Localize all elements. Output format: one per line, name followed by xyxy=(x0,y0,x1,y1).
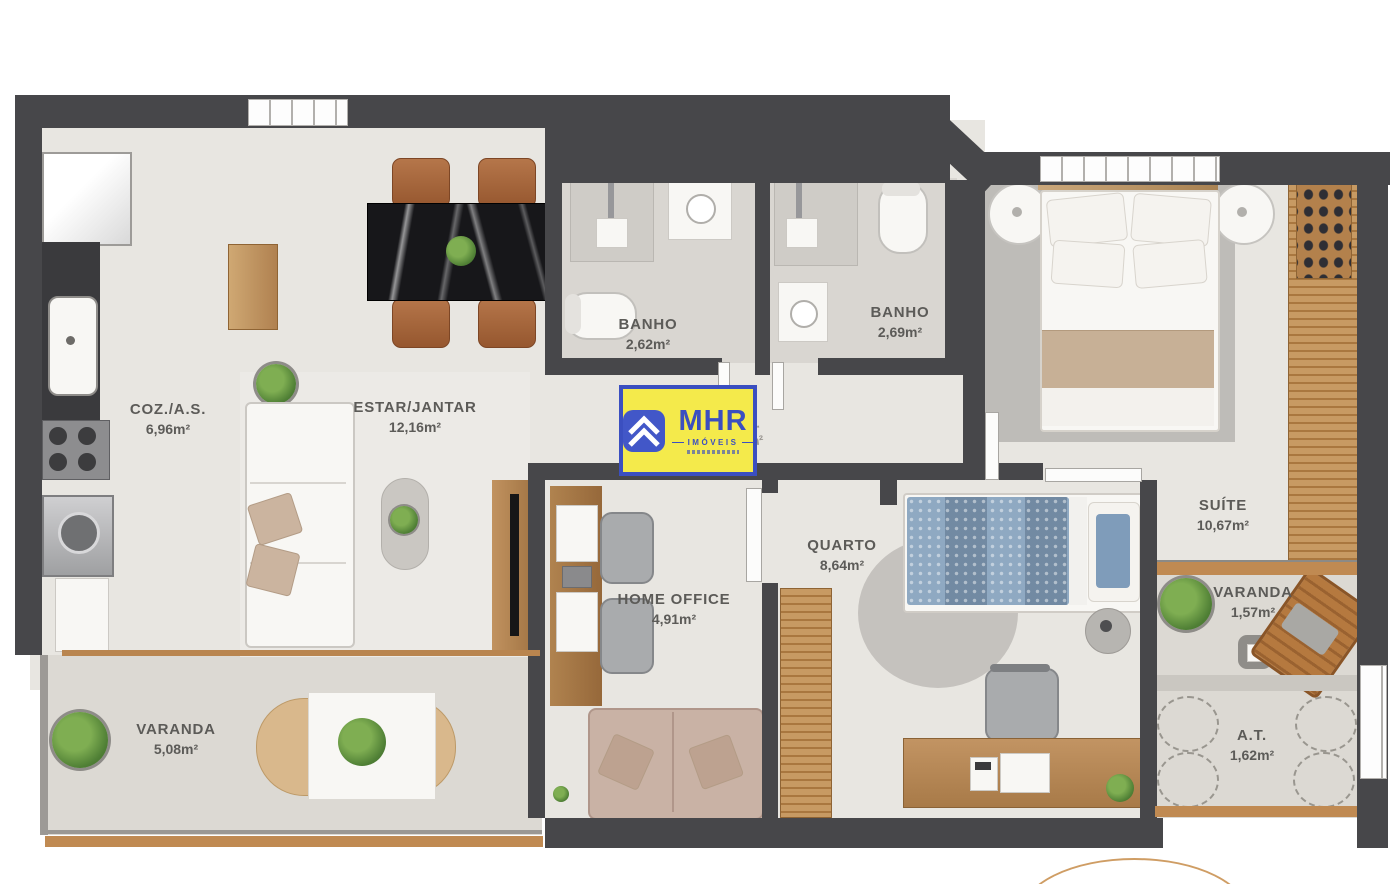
mhr-imoveis-logo: MHR IMÓVEIS xyxy=(619,385,757,476)
wall-office-left xyxy=(528,463,545,818)
room-label-estar: ESTAR/JANTAR 12,16m² xyxy=(353,398,476,436)
shower-pipe xyxy=(796,183,802,219)
quarto-duvet xyxy=(907,497,1069,605)
logo-text-block: MHR IMÓVEIS xyxy=(672,407,755,454)
logo-brand: MHR xyxy=(678,407,747,436)
window-dining xyxy=(248,99,348,126)
wall-suite-left xyxy=(963,180,985,480)
wall-varanda-left-rail xyxy=(40,655,48,835)
wall-bath-divider xyxy=(755,180,770,375)
wall-under-bath-a xyxy=(562,358,722,375)
bed-blanket xyxy=(1042,330,1214,390)
room-label-suite: SUÍTE 10,67m² xyxy=(1197,496,1249,534)
quarto-desk-chair xyxy=(985,668,1059,742)
sofa-cushion-line xyxy=(250,482,346,484)
varanda2-plant xyxy=(1160,578,1212,630)
varanda-table-plant xyxy=(338,718,386,766)
sliding-door-track xyxy=(62,650,540,656)
wall-under-bath-b xyxy=(818,358,945,375)
door-banho2 xyxy=(772,362,784,410)
logo-dash xyxy=(742,442,754,444)
room-name: BANHO xyxy=(871,303,930,323)
room-name: ESTAR/JANTAR xyxy=(353,398,476,418)
varanda-bottom-rail xyxy=(45,836,543,847)
logo-fineprint xyxy=(687,450,739,454)
decorative-arc xyxy=(1020,858,1249,884)
quarto-desk-chair-back xyxy=(990,664,1050,672)
at-duct xyxy=(1157,752,1219,808)
room-label-banho1: BANHO 2,62m² xyxy=(619,315,678,353)
room-area: 1,62m² xyxy=(1230,746,1274,764)
nightstand-knob xyxy=(1237,207,1247,217)
toilet-tank xyxy=(882,182,920,196)
room-area: 2,69m² xyxy=(871,323,930,341)
room-name: VARANDA xyxy=(1213,583,1293,603)
office-monitor-desk xyxy=(556,592,598,652)
logo-subtitle: IMÓVEIS xyxy=(688,438,739,447)
quarto-pillow-inner xyxy=(1096,514,1130,588)
room-name: A.T. xyxy=(1230,726,1274,746)
room-area: 8,64m² xyxy=(807,556,877,574)
dining-chair xyxy=(392,158,450,208)
room-area: 2,62m² xyxy=(619,335,678,353)
kitchen-cabinet xyxy=(228,244,278,330)
quarto-wardrobe xyxy=(780,588,832,818)
office-printer xyxy=(562,566,592,588)
office-monitor-desk xyxy=(556,505,598,562)
door-office xyxy=(746,488,762,582)
wall-quarto-top xyxy=(778,463,1043,480)
varanda-bottom-line xyxy=(42,830,542,834)
room-area: 1,57m² xyxy=(1213,603,1293,621)
room-label-varanda2: VARANDA 1,57m² xyxy=(1213,583,1293,621)
wall-bottom xyxy=(545,818,1163,848)
fridge xyxy=(42,152,132,246)
room-area: 12,16m² xyxy=(353,418,476,436)
wall-left xyxy=(15,95,42,655)
room-area: 10,67m² xyxy=(1197,516,1249,534)
varanda-plant xyxy=(52,712,108,768)
at-duct xyxy=(1157,696,1219,752)
room-label-banho2: BANHO 2,69m² xyxy=(871,303,930,341)
wall-top-bath-block xyxy=(560,95,950,183)
shower-head xyxy=(596,218,628,248)
wall-office-right-a xyxy=(762,463,778,493)
window-at xyxy=(1360,665,1387,779)
floor-plan-canvas: COZ./A.S. 6,96m² ESTAR/JANTAR 12,16m² BA… xyxy=(0,0,1400,884)
wall-quarto-top-stub xyxy=(880,480,897,505)
room-area: 6,96m² xyxy=(130,420,206,438)
bed-pillow xyxy=(1132,239,1208,289)
toilet-tank xyxy=(565,294,581,334)
dining-chair xyxy=(392,298,450,348)
office-plant xyxy=(553,786,569,802)
bed-sheet-fold xyxy=(1042,388,1214,426)
laundry-cabinet xyxy=(55,578,109,652)
wall-living-bath xyxy=(545,128,562,375)
side-table-knob xyxy=(1100,620,1112,632)
stove-burner xyxy=(49,453,67,471)
vanity-sink xyxy=(686,194,716,224)
office-sofa-seam xyxy=(672,712,674,812)
dining-chair xyxy=(478,298,536,348)
logo-subtitle-row: IMÓVEIS xyxy=(672,438,755,447)
mhr-house-icon xyxy=(622,409,666,453)
desk-plant xyxy=(1106,774,1134,802)
door-suite xyxy=(985,412,999,480)
dining-table-plant xyxy=(446,236,476,266)
laptop xyxy=(1000,753,1050,793)
notebook-screen xyxy=(975,762,991,770)
balcony-ledge xyxy=(1155,675,1357,691)
shower-pipe xyxy=(608,183,614,219)
sink-bowl xyxy=(790,300,818,328)
quarto-sheet xyxy=(1069,497,1087,605)
room-area: 5,08m² xyxy=(136,740,216,758)
room-label-coz: COZ./A.S. 6,96m² xyxy=(130,400,206,438)
room-name: VARANDA xyxy=(136,720,216,740)
coffee-table-plant xyxy=(390,506,418,534)
stove-burner xyxy=(49,427,67,445)
kitchen-sink xyxy=(48,296,98,396)
stove-burner xyxy=(78,427,96,445)
door-quarto xyxy=(1045,468,1142,482)
wall-quarto-right xyxy=(1140,480,1157,818)
office-chair xyxy=(600,512,654,584)
wall-bath2-right xyxy=(945,180,965,375)
room-area: 4,91m² xyxy=(618,610,731,628)
washing-machine-door xyxy=(58,512,100,554)
room-label-at: A.T. 1,62m² xyxy=(1230,726,1274,764)
kitchen-faucet xyxy=(66,336,75,345)
at-duct xyxy=(1295,696,1357,752)
room-label-quarto: QUARTO 8,64m² xyxy=(807,536,877,574)
room-label-varanda1: VARANDA 5,08m² xyxy=(136,720,216,758)
stove-burner xyxy=(78,453,96,471)
room-name: BANHO xyxy=(619,315,678,335)
bed-pillow xyxy=(1051,240,1126,289)
living-plant xyxy=(256,364,296,404)
wardrobe-shoe-shelf xyxy=(1296,181,1352,279)
at-duct xyxy=(1293,752,1355,808)
room-name: QUARTO xyxy=(807,536,877,556)
logo-dash xyxy=(672,442,684,444)
shower-head xyxy=(786,218,818,248)
room-name: COZ./A.S. xyxy=(130,400,206,420)
tv xyxy=(510,494,519,636)
dining-chair xyxy=(478,158,536,208)
at-bottom-rail xyxy=(1155,806,1357,817)
wall-office-right-b xyxy=(762,583,778,818)
room-name: SUÍTE xyxy=(1197,496,1249,516)
nightstand-knob xyxy=(1012,207,1022,217)
room-name: HOME OFFICE xyxy=(618,590,731,610)
window-suite xyxy=(1040,156,1220,182)
room-label-homeoffice: HOME OFFICE 4,91m² xyxy=(618,590,731,628)
suite-varanda-door-track xyxy=(1157,560,1357,575)
